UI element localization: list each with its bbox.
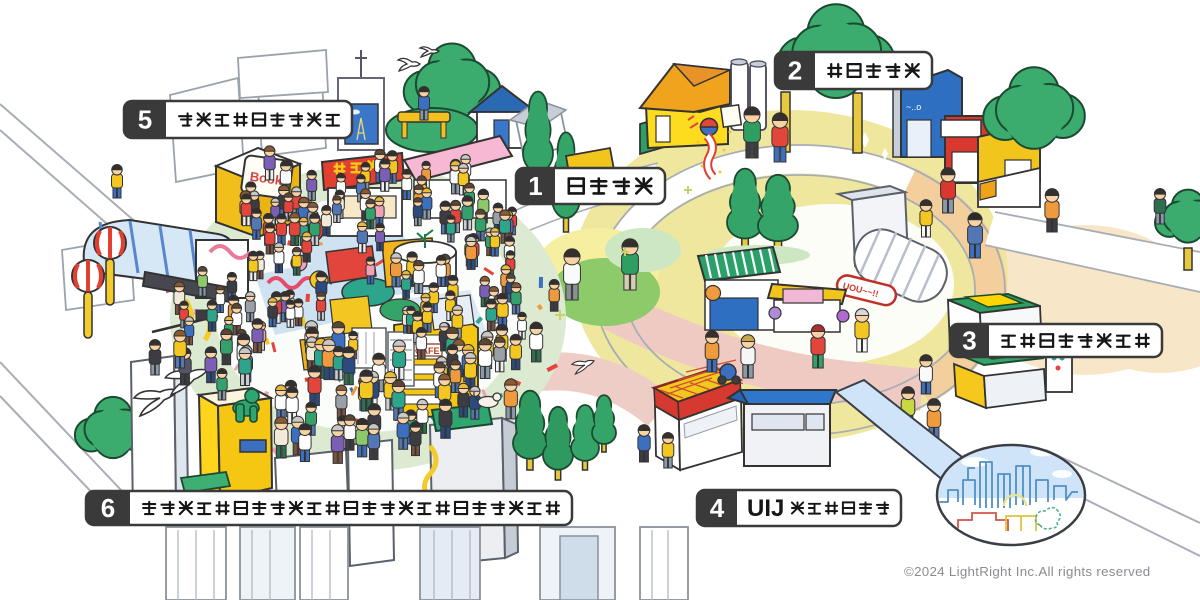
svg-text:3: 3 (962, 326, 976, 356)
svg-text:6: 6 (101, 493, 115, 523)
svg-text:2: 2 (788, 56, 802, 86)
svg-text:5: 5 (138, 105, 152, 135)
svg-text:©2024 LightRight Inc.All right: ©2024 LightRight Inc.All rights reserved (904, 564, 1151, 579)
svg-text:UIJ: UIJ (747, 495, 784, 522)
svg-text:1: 1 (528, 171, 542, 201)
svg-text:~..o: ~..o (906, 102, 921, 112)
svg-text:4: 4 (710, 493, 725, 523)
